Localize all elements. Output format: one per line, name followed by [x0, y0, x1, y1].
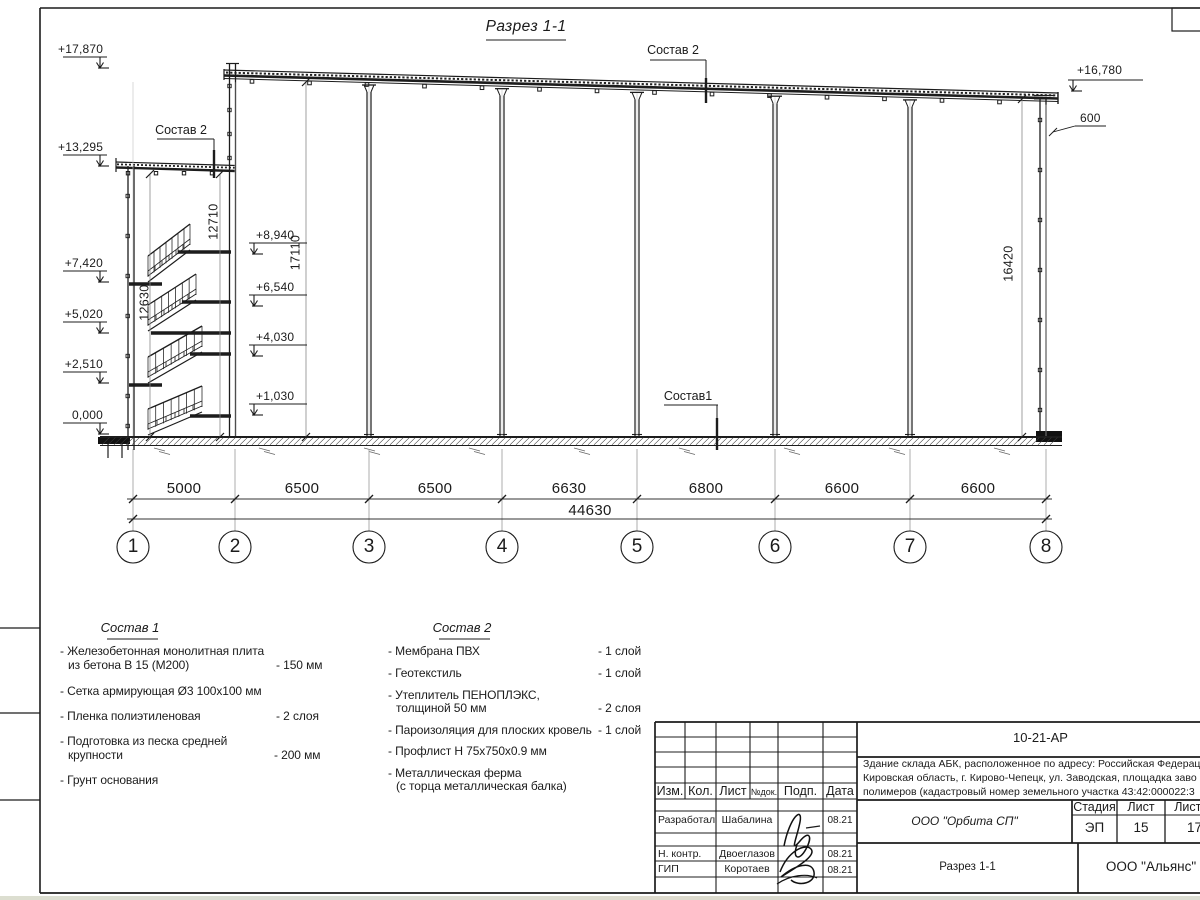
staff-name: Коротаев — [716, 864, 778, 875]
customer-org: ООО "Альянс" — [1078, 860, 1200, 874]
total-dim: 44630 — [555, 503, 625, 519]
sheets-value: 17 — [1165, 821, 1200, 835]
list-item: - Сетка армирующая Ø3 100х100 мм — [60, 685, 262, 698]
axis-bubble-1: 1 — [118, 537, 148, 557]
titleblock-col-list: Лист — [716, 785, 750, 798]
axis-bubble-3: 3 — [354, 537, 384, 557]
section-title: Разрез 1-1 — [470, 19, 582, 35]
titleblock-col-data: Дата — [823, 785, 857, 798]
roof-overhang-dim: 600 — [1080, 112, 1101, 125]
list-item-value: - 1 слой — [598, 724, 641, 737]
list-item-value: - 150 мм — [276, 659, 322, 672]
axis-bubble-7: 7 — [895, 537, 925, 557]
elevation-mark: +5,020 — [58, 308, 103, 321]
stage-value: ЭП — [1072, 821, 1117, 835]
titleblock-col-ndok: №док. — [750, 788, 778, 797]
span-dim: 6600 — [943, 481, 1013, 497]
span-dim: 5000 — [149, 481, 219, 497]
list-item: - Грунт основания — [60, 774, 158, 787]
list-item: - Железобетонная монолитная плита — [60, 645, 264, 658]
staff-date: 08.21 — [823, 816, 857, 827]
list-item: - Геотекстиль — [388, 667, 462, 680]
list-item: из бетона В 15 (М200) — [68, 659, 189, 672]
stage-label: Стадия — [1072, 801, 1117, 814]
composition2-top-label: Состав 2 — [628, 44, 718, 57]
titleblock-col-izm: Изм. — [655, 785, 685, 798]
elevation-mark-right: +16,780 — [1077, 64, 1122, 77]
titleblock-col-kol: Кол. — [685, 785, 716, 798]
list-item: крупности — [68, 749, 123, 762]
project-description-line: Кировская область, г. Кирово-Чепецк, ул.… — [863, 773, 1197, 784]
span-dim: 6500 — [267, 481, 337, 497]
elevation-mark: +17,870 — [58, 43, 103, 56]
span-dim: 6800 — [671, 481, 741, 497]
list-item: - Подготовка из песка средней — [60, 735, 227, 748]
composition2-title: Состав 2 — [417, 621, 507, 635]
titleblock-col-podp: Подп. — [778, 785, 823, 798]
list-item: - Пароизоляция для плоских кровель — [388, 724, 592, 737]
project-description-line: Здание склада АБК, расположенное по адре… — [863, 759, 1200, 770]
staff-role: Разработал — [658, 815, 715, 826]
list-item: (с торца металлическая балка) — [396, 780, 567, 793]
vertical-dim: 12710 — [207, 177, 220, 267]
elevation-mark: +1,030 — [256, 390, 294, 403]
sheet-value: 15 — [1117, 821, 1165, 835]
project-description-line: полимеров (кадастровый номер земельного … — [863, 787, 1195, 798]
drawing-sheet: Разрез 1-1 Состав 2 Состав 2 Состав1 +17… — [0, 0, 1200, 900]
staff-name: Шабалина — [716, 815, 778, 826]
staff-name: Двоеглазов — [716, 849, 778, 860]
staff-date: 08.21 — [823, 866, 857, 877]
vertical-dim: 17110 — [289, 208, 302, 298]
list-item: - Металлическая ферма — [388, 767, 521, 780]
vertical-dim: 16420 — [1002, 219, 1015, 309]
list-item-value: - 2 слоя — [276, 710, 319, 723]
axis-bubble-8: 8 — [1031, 537, 1061, 557]
list-item: - Утеплитель ПЕНОПЛЭКС, — [388, 689, 540, 702]
elevation-mark: +2,510 — [58, 358, 103, 371]
axis-bubble-4: 4 — [487, 537, 517, 557]
composition1-title: Состав 1 — [85, 621, 175, 635]
span-dim: 6500 — [400, 481, 470, 497]
axis-bubble-2: 2 — [220, 537, 250, 557]
list-item-value: - 2 слоя — [598, 702, 641, 715]
sheets-label: Листов — [1165, 801, 1200, 814]
list-item: - Мембрана ПВХ — [388, 645, 480, 658]
sheet-label: Лист — [1117, 801, 1165, 814]
staff-role: Н. контр. — [658, 849, 701, 860]
list-item-value: - 1 слой — [598, 645, 641, 658]
composition1-floor-label: Состав1 — [643, 390, 733, 403]
staff-date: 08.21 — [823, 850, 857, 861]
designer-org: ООО "Орбита СП" — [857, 815, 1072, 828]
elevation-mark: +7,420 — [58, 257, 103, 270]
span-dim: 6600 — [807, 481, 877, 497]
axis-bubble-6: 6 — [760, 537, 790, 557]
staff-role: ГИП — [658, 864, 679, 875]
elevation-mark: +4,030 — [256, 331, 294, 344]
doc-number: 10-21-АР — [857, 731, 1200, 745]
background-window-sliver — [0, 896, 1200, 900]
list-item-value: - 200 мм — [274, 749, 320, 762]
axis-bubble-5: 5 — [622, 537, 652, 557]
vertical-dim: 12630 — [138, 258, 151, 348]
list-item: - Пленка полиэтиленовая — [60, 710, 201, 723]
composition2-left-label: Состав 2 — [136, 124, 226, 137]
titleblock-section-name: Разрез 1-1 — [857, 861, 1078, 873]
span-dim: 6630 — [534, 481, 604, 497]
list-item: - Профлист Н 75х750х0.9 мм — [388, 745, 547, 758]
elevation-mark: 0,000 — [58, 409, 103, 422]
list-item-value: - 1 слой — [598, 667, 641, 680]
elevation-mark: +13,295 — [58, 141, 103, 154]
list-item: толщиной 50 мм — [396, 702, 486, 715]
